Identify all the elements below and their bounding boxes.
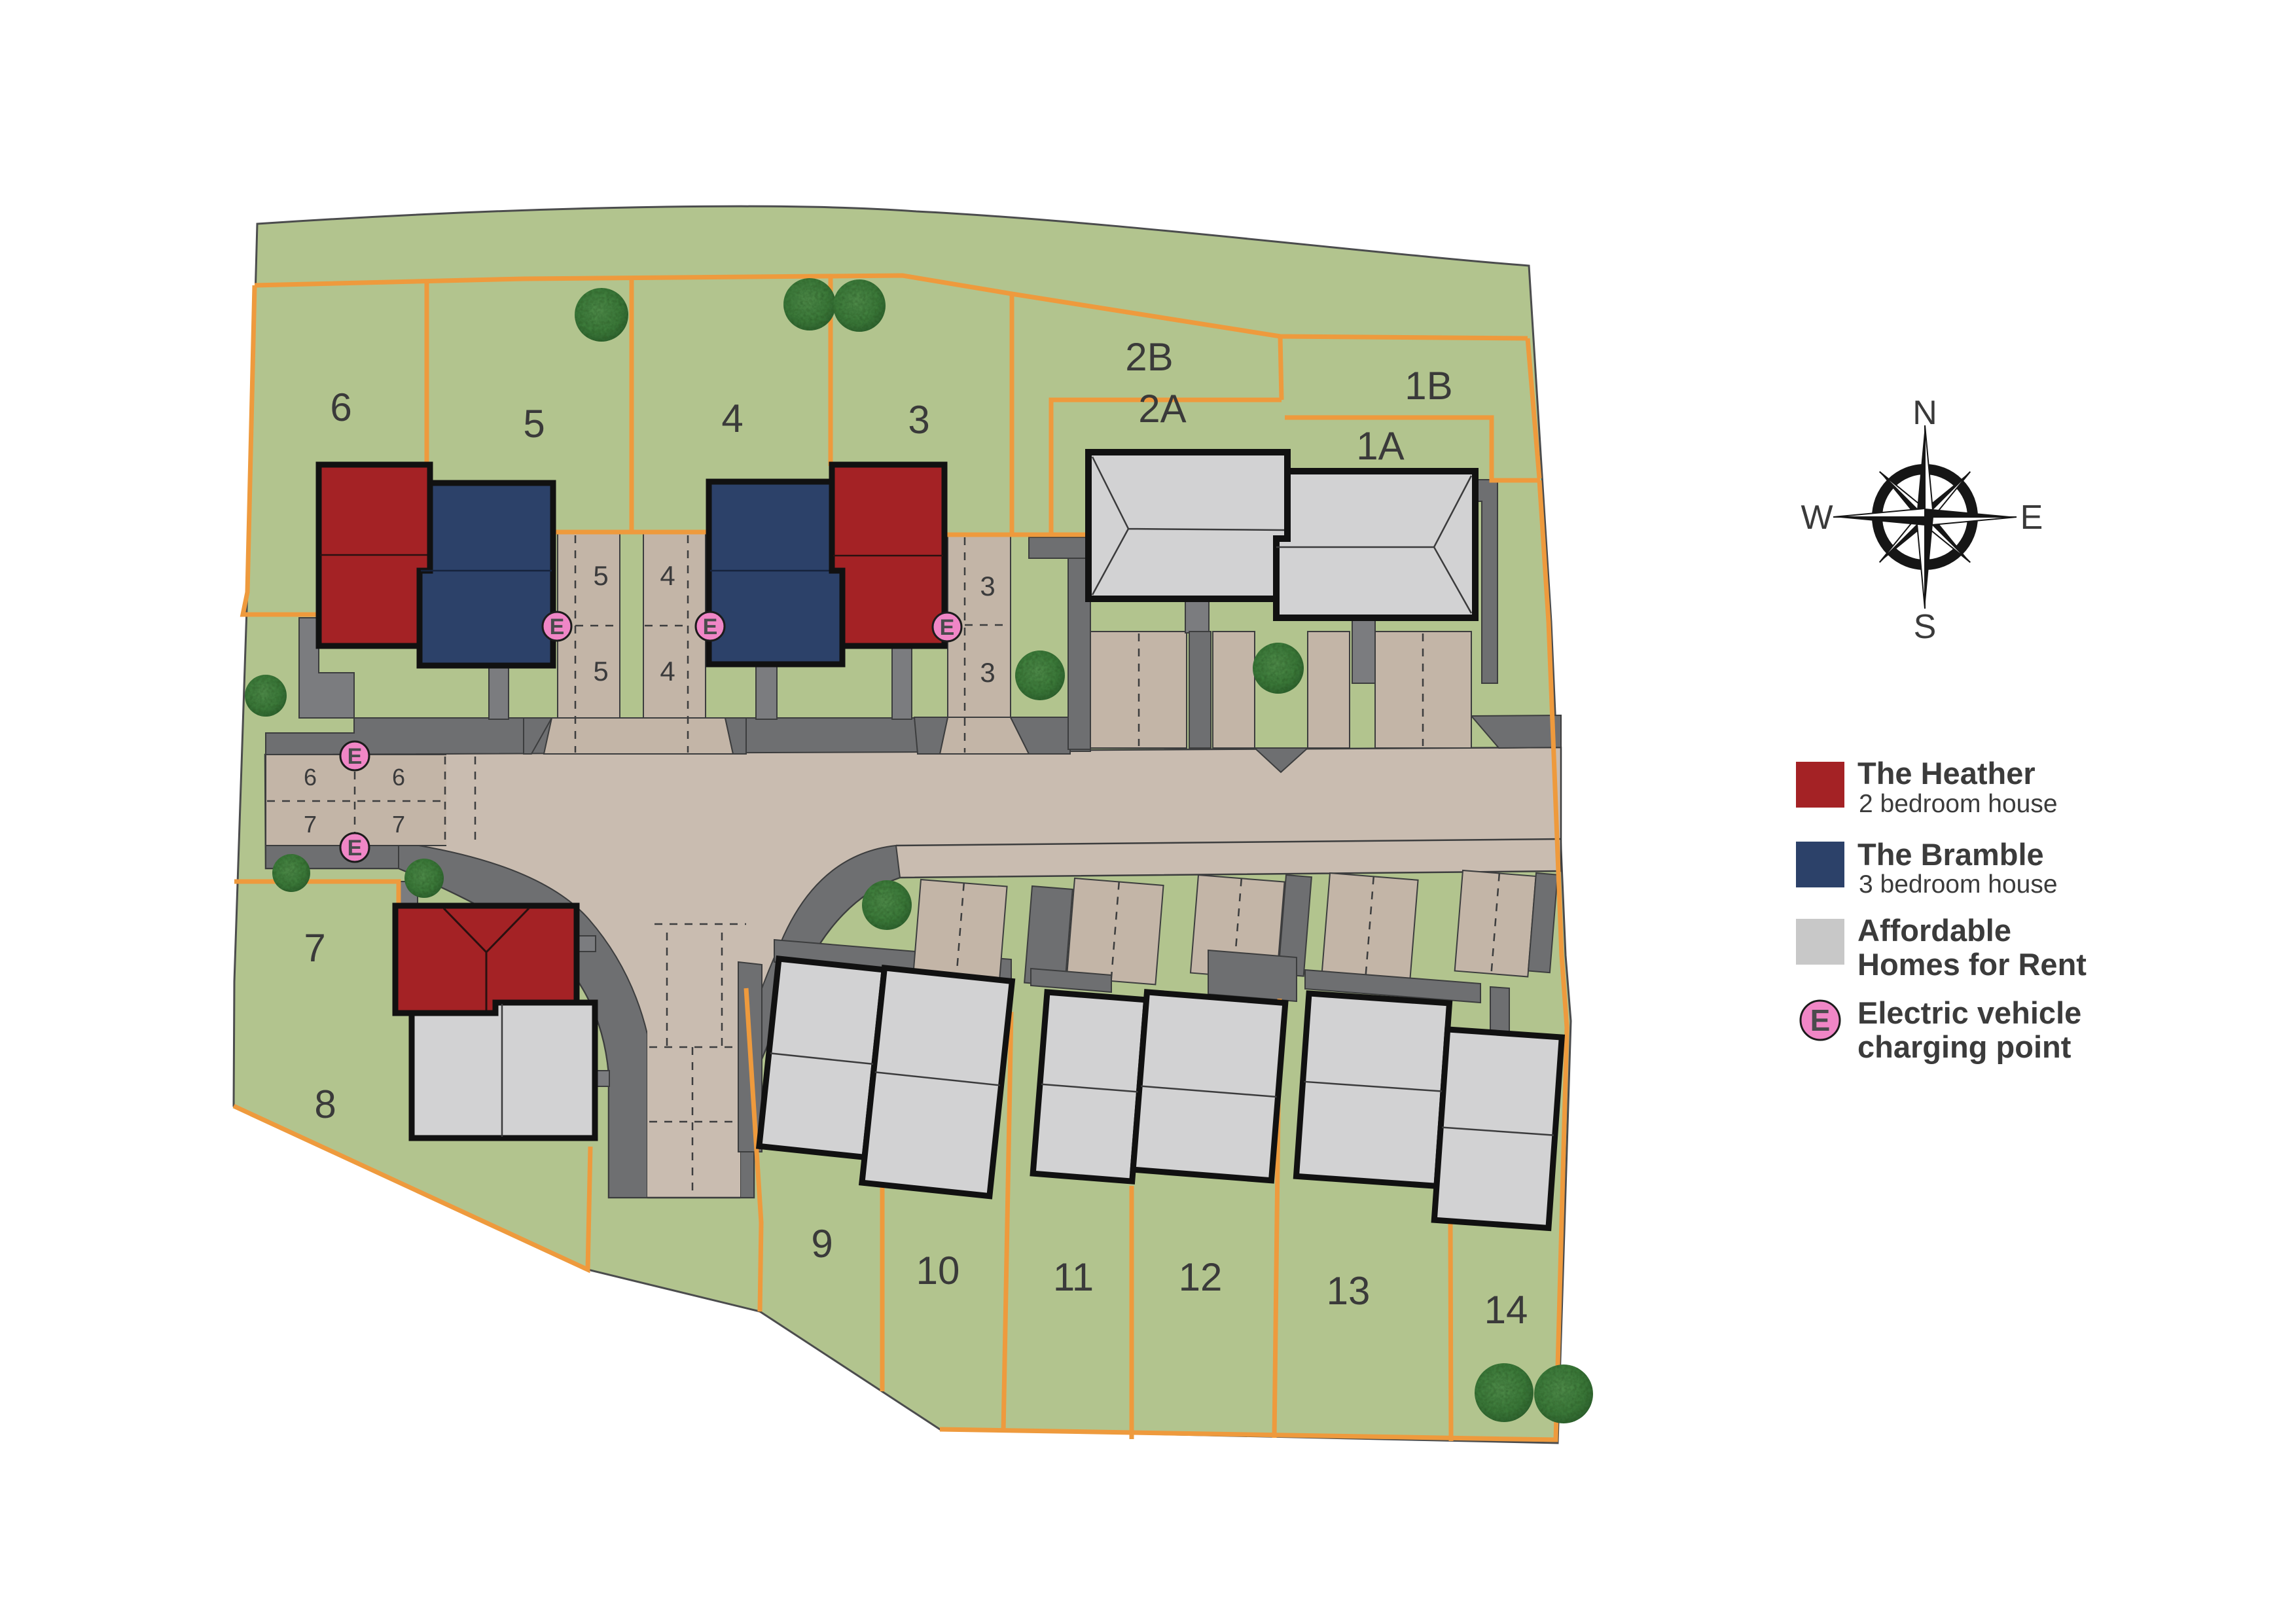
svg-text:6: 6: [304, 764, 317, 791]
svg-text:9: 9: [811, 1222, 833, 1266]
svg-text:8: 8: [314, 1082, 336, 1126]
svg-text:3: 3: [908, 398, 929, 442]
svg-text:1B: 1B: [1405, 364, 1452, 408]
svg-text:Homes for Rent: Homes for Rent: [1857, 947, 2087, 982]
svg-text:2B: 2B: [1125, 335, 1173, 379]
svg-text:S: S: [1914, 608, 1937, 646]
svg-text:4: 4: [660, 656, 675, 687]
svg-text:W: W: [1801, 499, 1833, 537]
svg-text:Affordable: Affordable: [1857, 913, 2011, 948]
svg-text:7: 7: [304, 926, 325, 970]
svg-text:4: 4: [660, 560, 675, 591]
svg-text:6: 6: [392, 764, 405, 791]
svg-text:13: 13: [1327, 1269, 1371, 1313]
svg-text:5: 5: [593, 560, 608, 591]
svg-text:N: N: [1912, 394, 1937, 432]
svg-text:E: E: [2020, 499, 2043, 537]
svg-text:5: 5: [523, 402, 545, 446]
svg-text:2A: 2A: [1138, 387, 1186, 431]
svg-text:4: 4: [721, 397, 743, 440]
svg-text:12: 12: [1179, 1255, 1223, 1299]
svg-text:E: E: [940, 615, 955, 640]
svg-text:E: E: [348, 744, 363, 769]
svg-text:E: E: [550, 615, 565, 639]
svg-text:E: E: [1810, 1003, 1831, 1037]
svg-text:E: E: [703, 615, 718, 639]
svg-text:3: 3: [980, 657, 995, 688]
svg-text:3: 3: [980, 571, 995, 601]
svg-text:5: 5: [593, 656, 608, 687]
svg-text:2 bedroom house: 2 bedroom house: [1859, 790, 2058, 818]
svg-text:11: 11: [1053, 1255, 1094, 1299]
svg-text:3 bedroom house: 3 bedroom house: [1859, 870, 2058, 899]
svg-text:7: 7: [392, 811, 405, 838]
svg-text:10: 10: [916, 1249, 960, 1293]
svg-text:Electric vehicle: Electric vehicle: [1857, 995, 2081, 1030]
svg-text:7: 7: [304, 811, 317, 838]
svg-text:1A: 1A: [1356, 424, 1404, 468]
svg-text:E: E: [348, 836, 363, 861]
svg-text:The Heather: The Heather: [1857, 756, 2036, 791]
svg-text:6: 6: [330, 385, 351, 429]
svg-text:The Bramble: The Bramble: [1857, 837, 2044, 872]
svg-text:charging point: charging point: [1857, 1029, 2072, 1064]
svg-text:14: 14: [1484, 1288, 1528, 1332]
